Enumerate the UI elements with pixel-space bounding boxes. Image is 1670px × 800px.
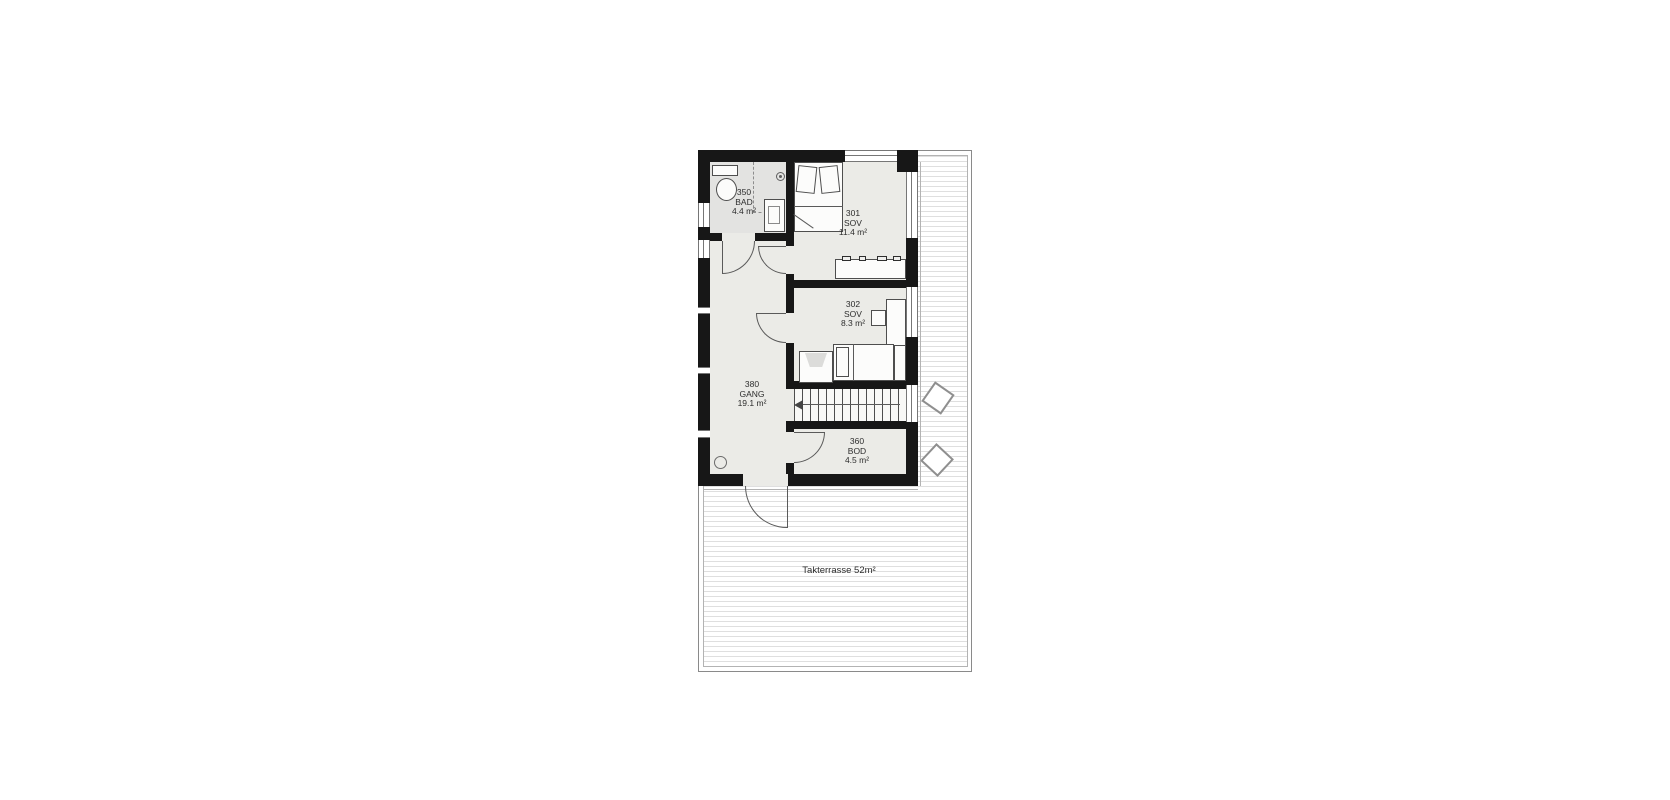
bed-301-blanket-line (794, 206, 843, 207)
wall-bath-south-right (755, 233, 786, 241)
stairs-arrow-icon (794, 400, 803, 410)
terrace-border-left (698, 486, 699, 672)
terrace-inner-border-top (918, 155, 967, 156)
wall-stairs-bod (786, 421, 906, 429)
room-label-301: 301 SOV 11.4 m² (823, 209, 883, 238)
room-area: 11.4 m² (823, 228, 883, 238)
terrace-border-right (971, 150, 972, 672)
window-west-gang (698, 240, 710, 258)
window-east-301 (906, 172, 918, 238)
stairs-direction-line (802, 404, 900, 405)
window-west-bath (698, 203, 710, 227)
terrace-deck-east (918, 156, 967, 486)
wall-bath-east (786, 162, 794, 246)
door-terrace-leaf (787, 486, 788, 528)
desk-301-item-2 (859, 256, 866, 261)
window-east-302 (906, 287, 918, 337)
room-area: 8.3 m² (823, 319, 883, 329)
roof-edge-east (920, 162, 921, 486)
terrace-label: Takterrasse 52m² (759, 565, 919, 576)
vent-west-3 (698, 430, 710, 438)
window-east-stairs (906, 385, 918, 422)
terrace-inner-border-right (967, 155, 968, 667)
wall-west-seg5 (698, 374, 710, 430)
desk-301-item-4 (893, 256, 901, 261)
wall-bod-stub-bottom (786, 463, 794, 474)
wall-south-left (698, 474, 743, 486)
wall-east-seg2 (906, 337, 918, 385)
desk-301 (835, 259, 906, 279)
floor-plan: 350 BAD 4.4 m² 301 SOV 11.4 m² 302 SOV 8… (0, 0, 1670, 800)
wall-north-east-corner (897, 150, 918, 172)
wall-301-302 (786, 280, 906, 288)
wall-west-seg4 (698, 314, 710, 367)
terrace-inner-border-bottom (703, 666, 967, 667)
bed-301-pillow-left (796, 165, 818, 194)
desk-301-item-3 (877, 256, 887, 261)
room-area: 4.5 m² (827, 456, 887, 466)
terrace-deck-south (703, 486, 967, 667)
roof-edge-south (703, 489, 918, 490)
bed-302-pillow (836, 347, 849, 377)
wall-east-seg1 (906, 238, 918, 287)
window-north (845, 150, 897, 162)
wall-bod-stub-top (786, 429, 794, 432)
room-label-gang: 380 GANG 19.1 m² (722, 380, 782, 409)
wall-corridor-seg3 (786, 343, 794, 381)
wall-north (698, 150, 845, 162)
wall-west-seg1 (698, 150, 710, 203)
wall-west-seg3 (698, 258, 710, 307)
room-area: 4.4 m² (714, 207, 774, 217)
room-label-bathroom: 350 BAD 4.4 m² (714, 188, 774, 217)
room-area: 19.1 m² (722, 399, 782, 409)
bed-302-blanket-line (853, 344, 854, 381)
vent-west-2 (698, 367, 710, 374)
wall-south-right (788, 474, 918, 486)
stairs (794, 389, 906, 421)
wall-west-seg2 (698, 227, 710, 240)
desk-301-item-1 (842, 256, 851, 261)
floor-drain-gang-icon (714, 456, 727, 469)
room-label-302: 302 SOV 8.3 m² (823, 300, 883, 329)
terrace-inner-border-left (703, 486, 704, 666)
toilet-tank (712, 165, 738, 176)
shower-drain-dot (779, 175, 782, 178)
door-threshold (743, 474, 788, 486)
wall-corridor-seg2 (786, 288, 794, 313)
terrace-border-bottom (698, 671, 972, 672)
room-label-bod: 360 BOD 4.5 m² (827, 437, 887, 466)
vent-west-1 (698, 307, 710, 314)
terrace-border-top (918, 150, 972, 151)
nightstand-302 (894, 345, 906, 381)
bed-301-pillow-right (819, 165, 841, 194)
wall-bath-south-left (710, 233, 722, 241)
